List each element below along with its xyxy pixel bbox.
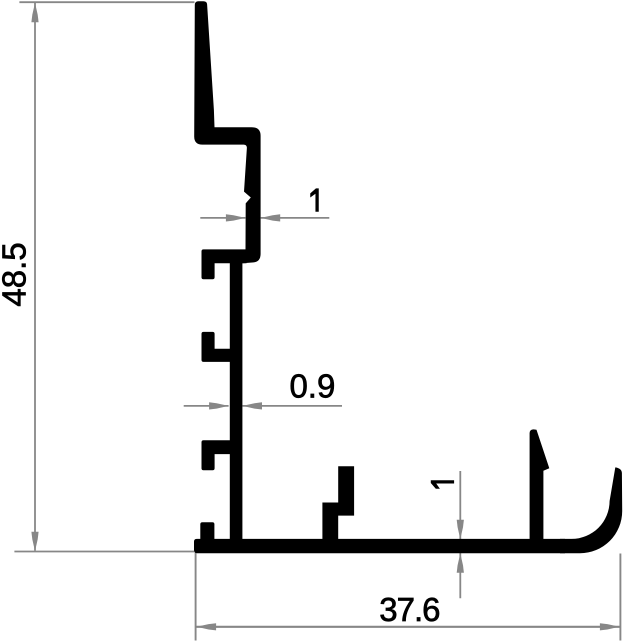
- svg-text:48.5: 48.5: [0, 242, 33, 306]
- svg-text:37.6: 37.6: [379, 591, 439, 628]
- svg-text:0.9: 0.9: [289, 368, 335, 405]
